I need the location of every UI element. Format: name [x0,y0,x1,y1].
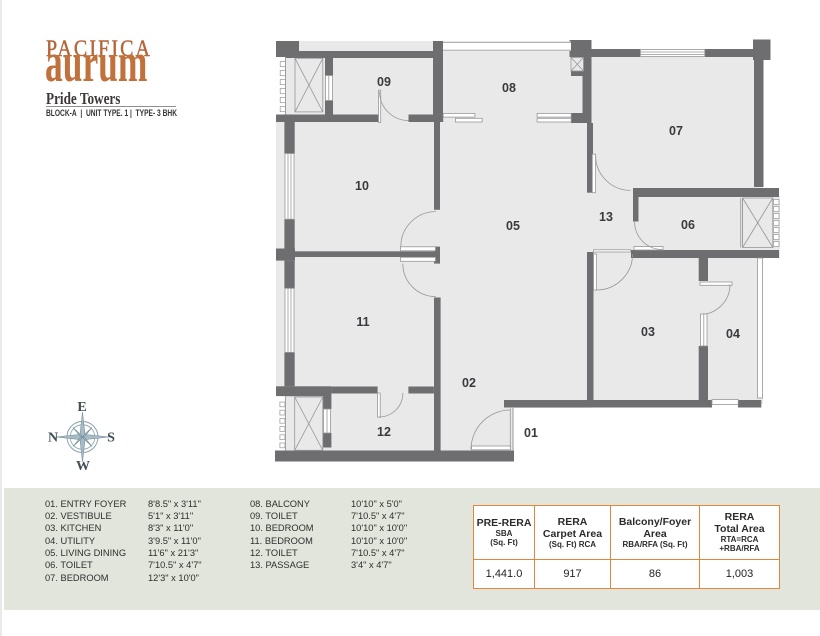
svg-text:E: E [77,400,86,415]
svg-text:N: N [48,431,58,446]
svg-text:S: S [107,431,115,446]
svg-text:W: W [76,459,90,474]
